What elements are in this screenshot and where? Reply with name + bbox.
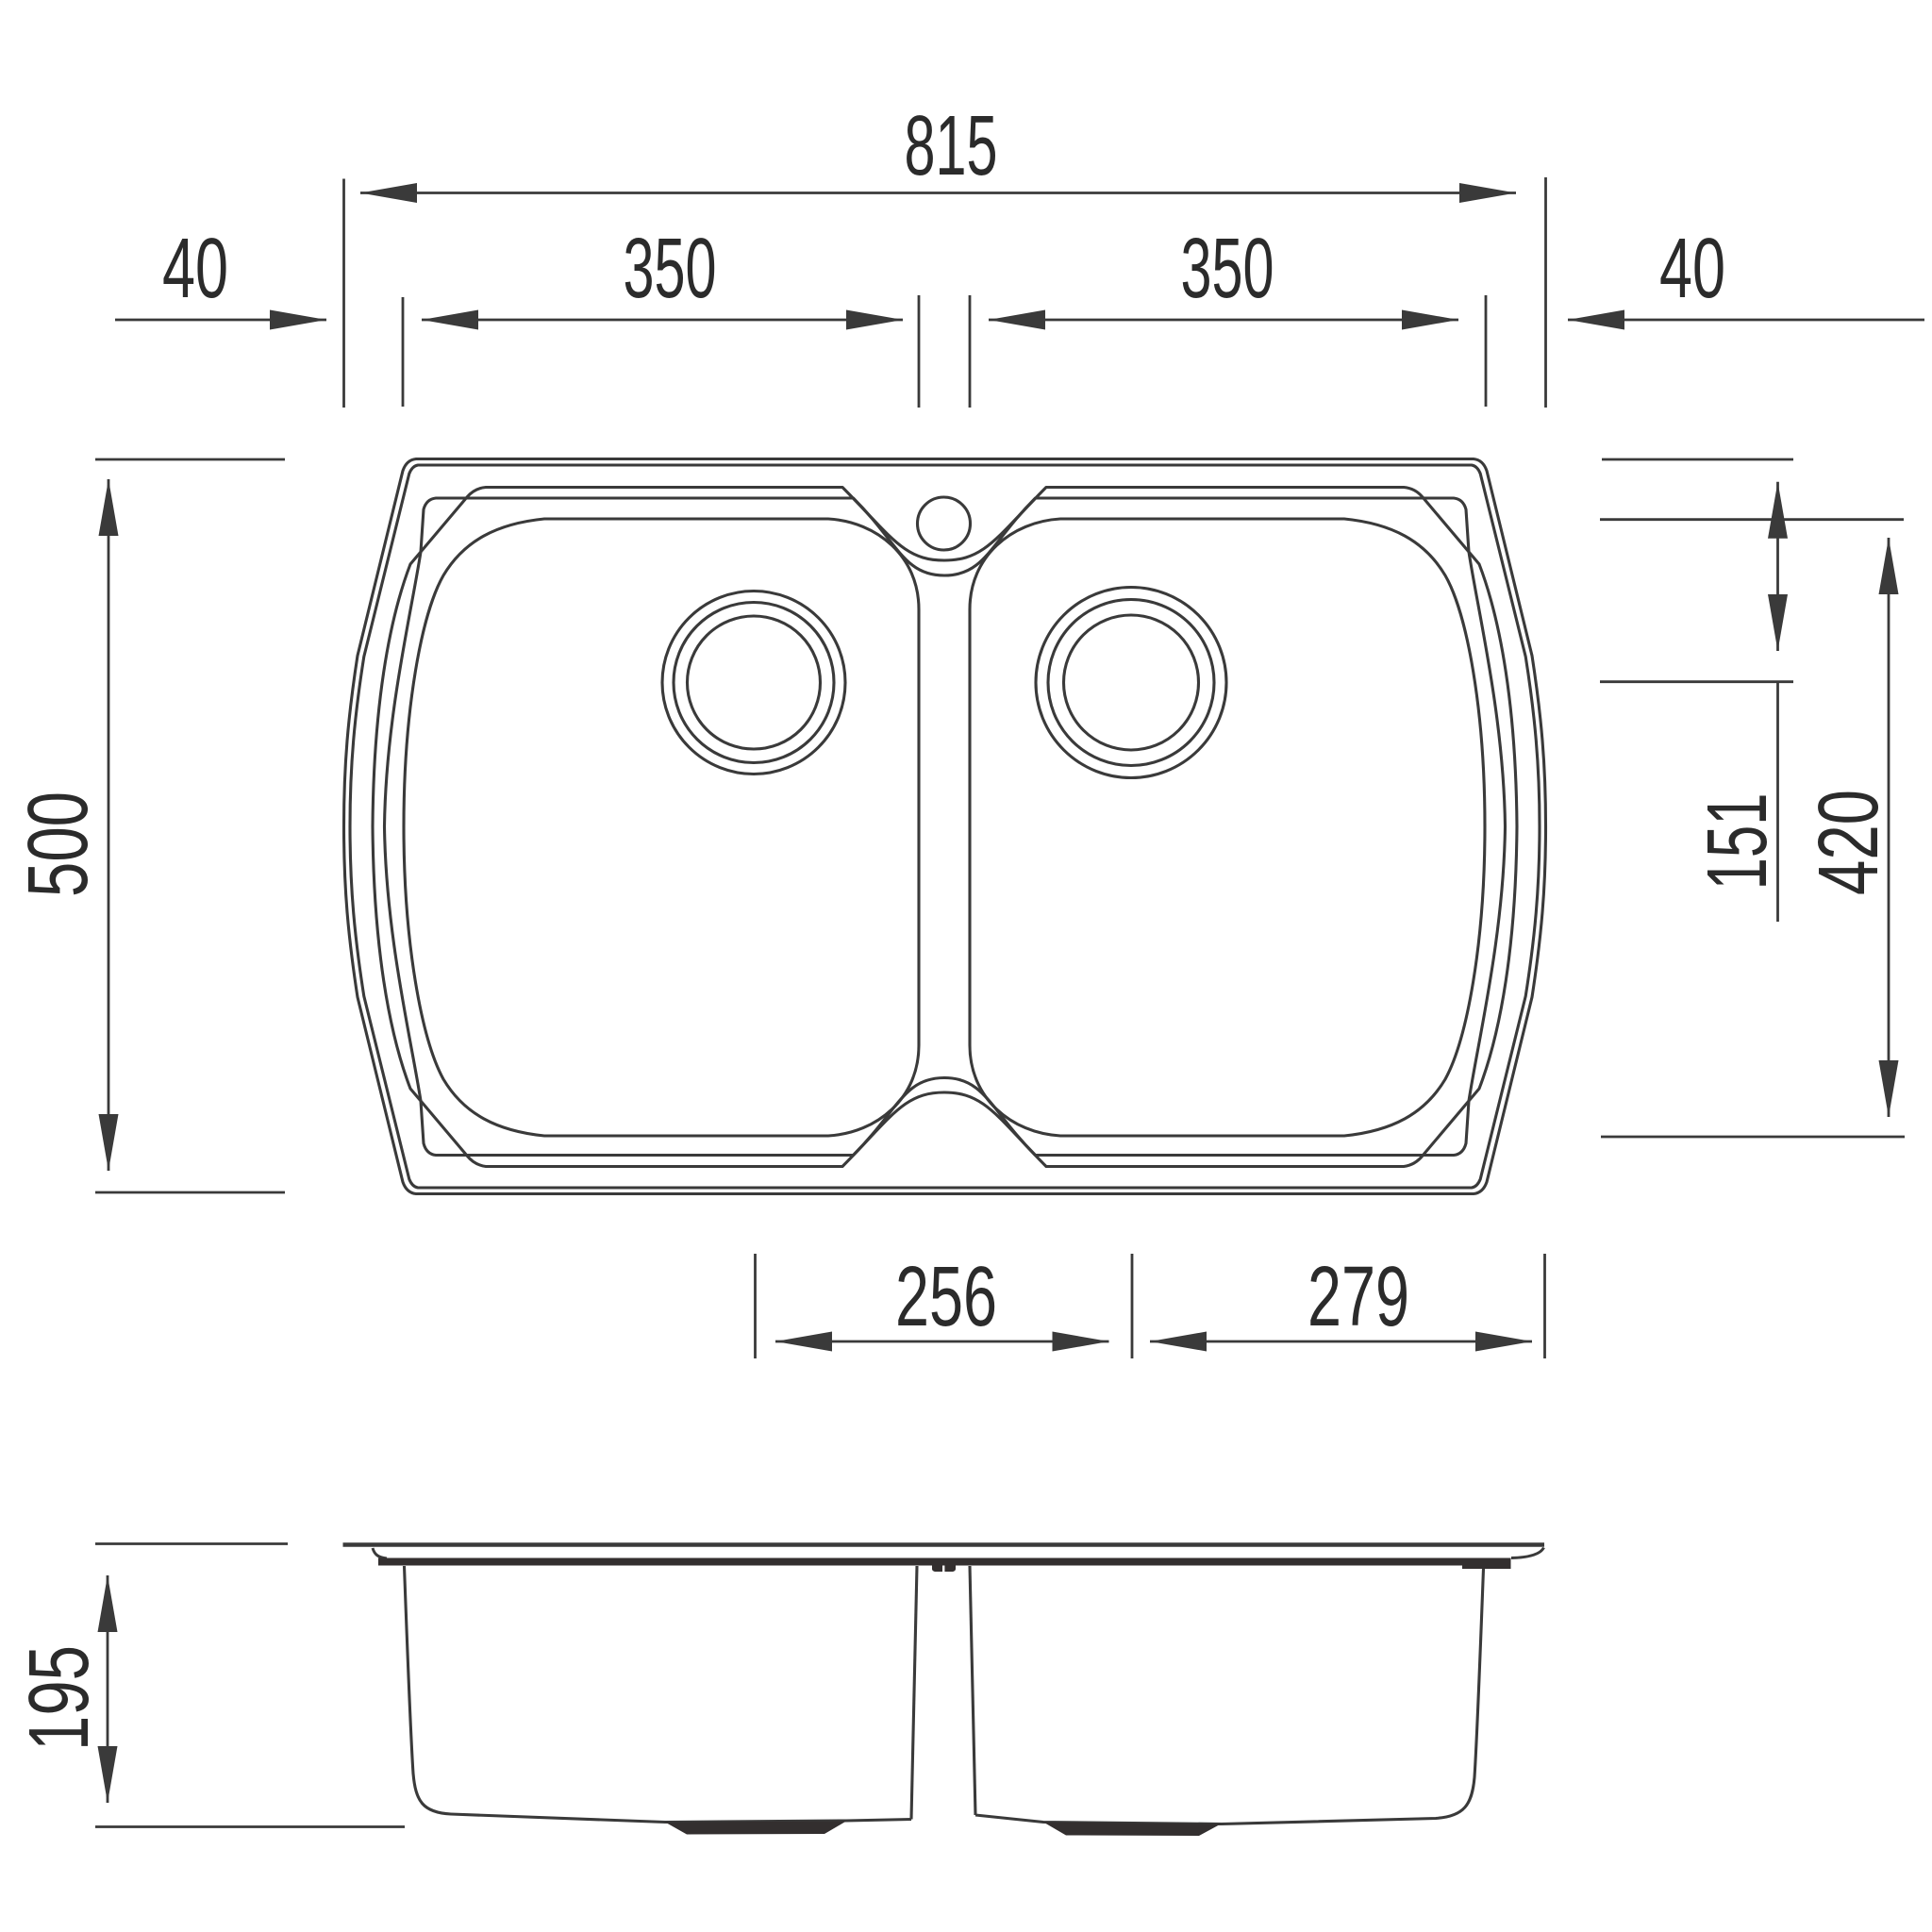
svg-text:40: 40 [162,222,228,316]
svg-text:151: 151 [1690,793,1785,891]
svg-text:350: 350 [624,222,717,316]
svg-text:40: 40 [1659,222,1725,316]
svg-text:195: 195 [12,1645,107,1751]
svg-text:500: 500 [11,791,106,897]
svg-text:279: 279 [1307,1250,1409,1344]
svg-text:815: 815 [905,99,998,193]
svg-text:256: 256 [895,1250,997,1344]
svg-text:420: 420 [1802,790,1896,895]
svg-text:350: 350 [1181,222,1274,316]
